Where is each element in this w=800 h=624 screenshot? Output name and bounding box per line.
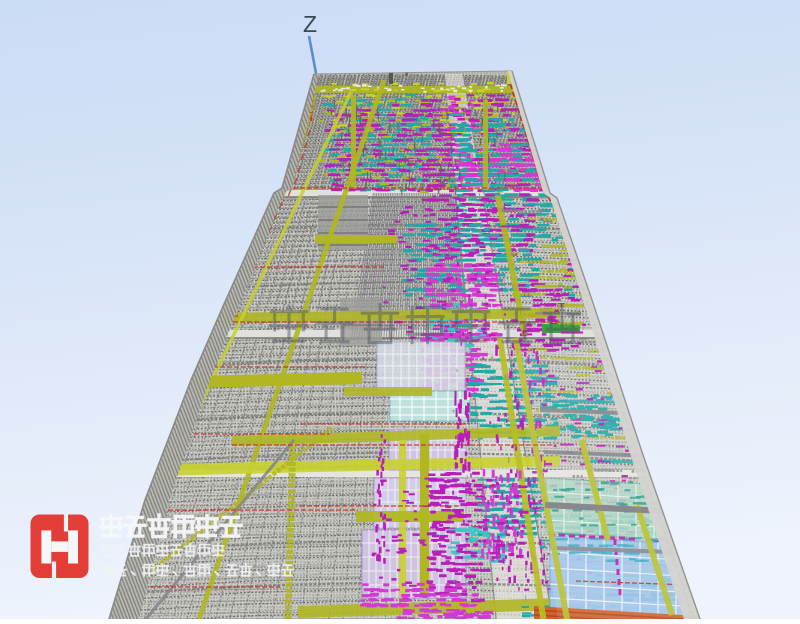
svg-text:Z: Z [303, 11, 317, 37]
